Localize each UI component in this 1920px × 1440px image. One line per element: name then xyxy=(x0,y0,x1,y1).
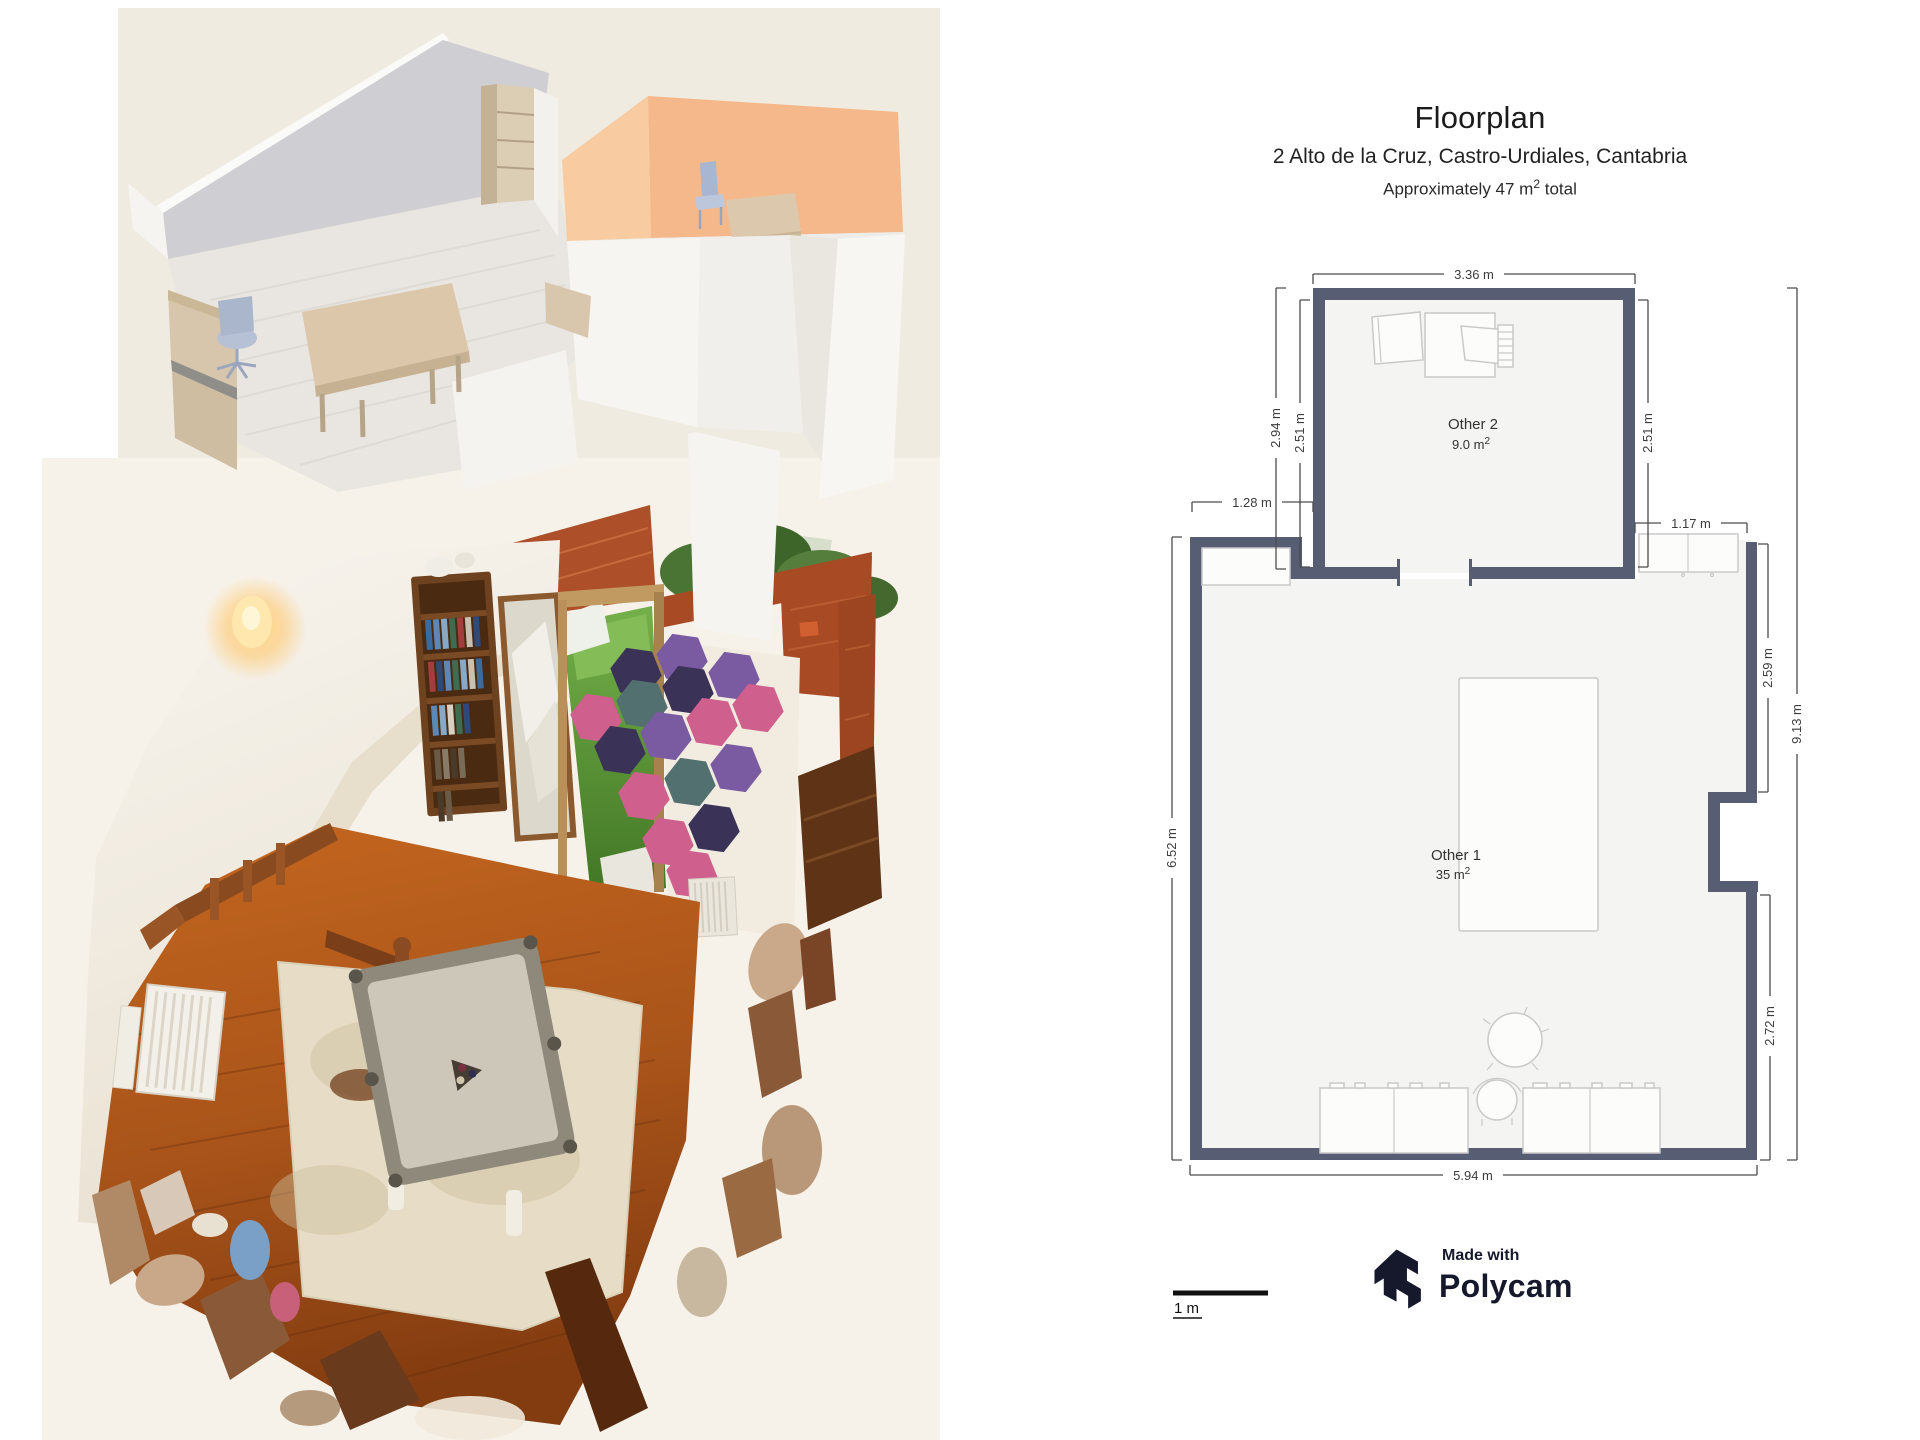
model-3d-view xyxy=(0,0,940,660)
pool-table-outline xyxy=(1459,678,1598,931)
svg-text:6.52 m: 6.52 m xyxy=(1164,828,1179,868)
white-wall-slab xyxy=(688,432,780,641)
dimension-right-full: 9.13 m xyxy=(1787,288,1804,1160)
svg-text:Other 1: Other 1 xyxy=(1431,847,1481,864)
svg-text:2.94 m: 2.94 m xyxy=(1268,408,1283,448)
svg-text:1.28 m: 1.28 m xyxy=(1232,495,1272,510)
white-wall-slab xyxy=(697,235,803,433)
svg-text:2.59 m: 2.59 m xyxy=(1760,648,1775,688)
brand-wordmark: Polycam xyxy=(1439,1268,1573,1304)
dimension-right-inner: 2.51 m xyxy=(1638,300,1655,567)
dimension-step: 1.28 m xyxy=(1192,495,1313,512)
orange-wall-left xyxy=(562,96,651,241)
svg-text:2.51 m: 2.51 m xyxy=(1292,413,1307,453)
composite-screenshot: Floorplan 2 Alto de la Cruz, Castro-Urdi… xyxy=(0,0,1920,1440)
dimension-right-upper: 2.59 m xyxy=(1758,544,1775,792)
svg-text:5.94 m: 5.94 m xyxy=(1453,1168,1493,1183)
dimension-left-inner: 2.51 m xyxy=(1292,300,1310,567)
sideboard-outline xyxy=(1523,1088,1660,1153)
svg-text:Other 2: Other 2 xyxy=(1448,416,1498,433)
svg-text:9.13 m: 9.13 m xyxy=(1789,704,1804,744)
scale-label: 1 m xyxy=(1174,1300,1199,1317)
model-bookshelf xyxy=(481,84,534,205)
polycam-logo-icon xyxy=(1374,1249,1420,1308)
model-office-chair xyxy=(217,296,257,378)
model-room-render xyxy=(128,33,905,641)
floorplan-drawing: 3.36 m 2.94 m 2.51 m 2.51 m 1.28 m 1.17 … xyxy=(940,0,1920,1440)
dimension-bottom: 5.94 m xyxy=(1190,1165,1757,1183)
polycam-credit: Made with Polycam xyxy=(1374,1247,1572,1309)
dimension-left-full: 6.52 m xyxy=(1164,537,1182,1160)
counter-outline xyxy=(1202,548,1290,585)
made-with-label: Made with xyxy=(1442,1247,1519,1264)
scale-bar: 1 m xyxy=(1173,1293,1268,1318)
svg-text:3.36 m: 3.36 m xyxy=(1454,267,1494,282)
dimension-left-outer: 2.94 m xyxy=(1268,288,1286,569)
svg-text:2.72 m: 2.72 m xyxy=(1762,1006,1777,1046)
dimension-right-lower: 2.72 m xyxy=(1760,895,1777,1160)
svg-text:1.17 m: 1.17 m xyxy=(1671,516,1711,531)
dimension-top: 3.36 m xyxy=(1313,267,1635,284)
svg-text:2.51 m: 2.51 m xyxy=(1640,413,1655,453)
dimension-cabinet: 1.17 m xyxy=(1635,516,1747,533)
